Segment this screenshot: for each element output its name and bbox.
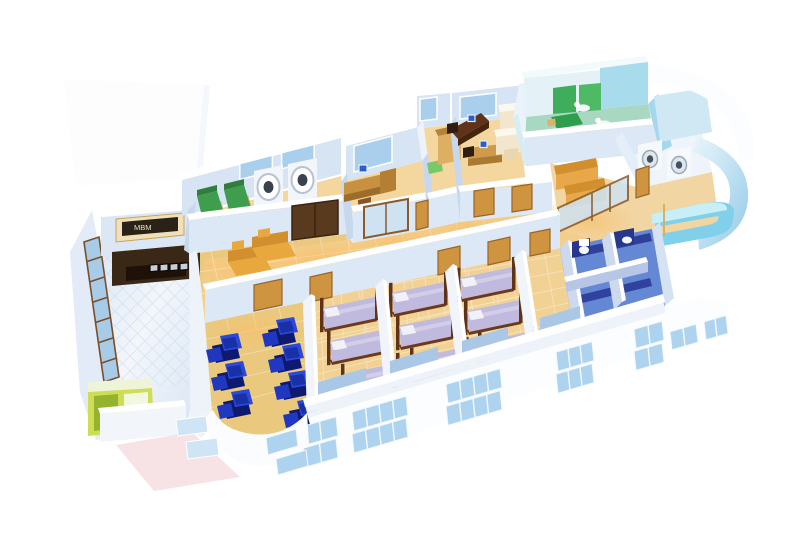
svg-text:MBM: MBM [134, 223, 152, 232]
